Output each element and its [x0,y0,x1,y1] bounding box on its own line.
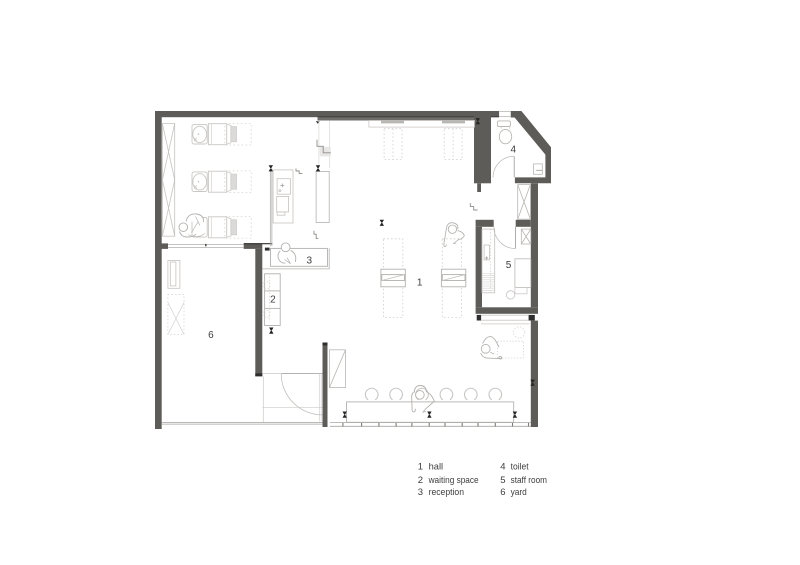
svg-text:3: 3 [307,255,313,266]
svg-text:3: 3 [418,487,423,498]
svg-text:6: 6 [208,330,214,341]
svg-text:toilet: toilet [511,461,529,472]
svg-text:reception: reception [429,487,464,498]
svg-text:1: 1 [417,277,423,288]
svg-text:1: 1 [418,461,423,472]
svg-text:4: 4 [500,461,505,472]
svg-text:6: 6 [500,487,505,498]
svg-text:2: 2 [270,295,276,306]
svg-text:2: 2 [418,475,423,486]
svg-text:waiting space: waiting space [428,475,479,486]
svg-text:yard: yard [511,487,527,498]
svg-text:4: 4 [511,144,517,155]
svg-text:5: 5 [506,260,512,271]
svg-text:staff room: staff room [511,475,547,486]
svg-text:hall: hall [429,461,444,472]
svg-text:5: 5 [500,475,505,486]
